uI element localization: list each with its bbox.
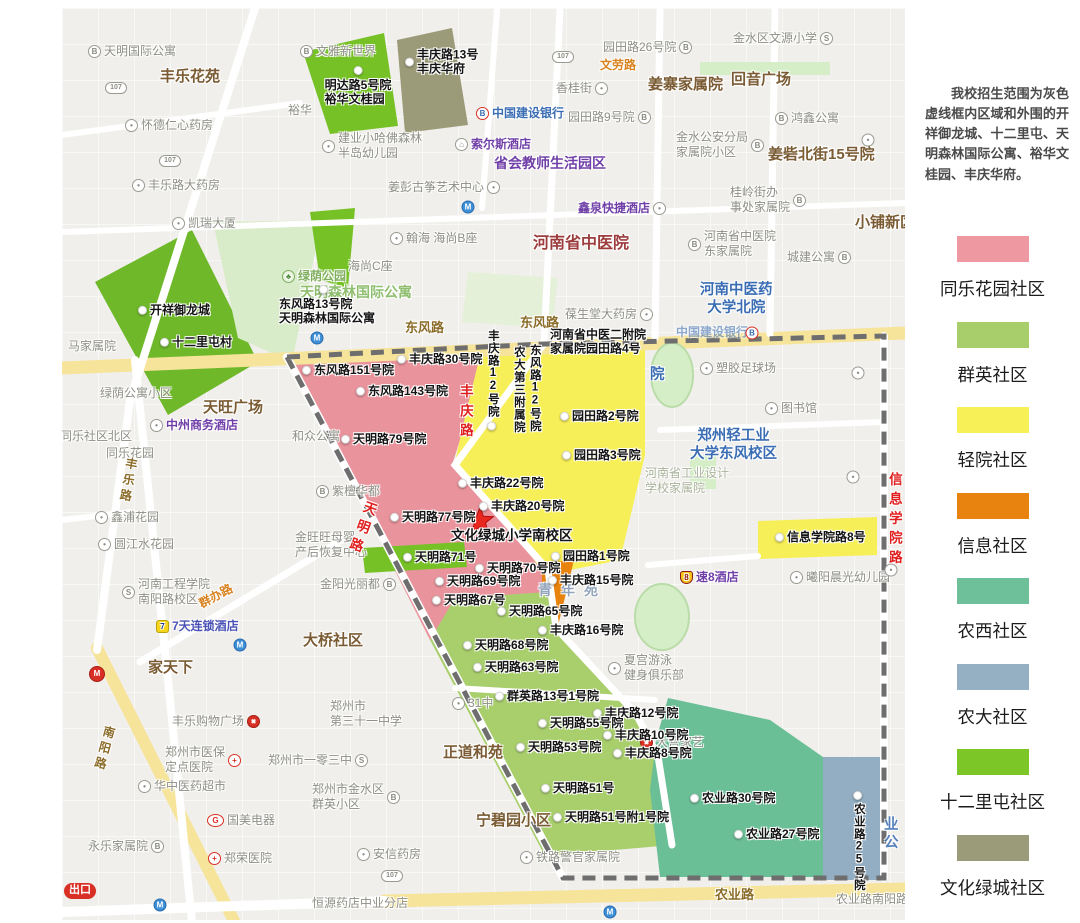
hosp-icon: +: [208, 852, 221, 865]
point-dot-icon: [538, 718, 547, 727]
point-label: 农大第三附属院: [511, 346, 525, 434]
point-label: 丰庆路22号院: [470, 476, 543, 490]
map-label: •圆江水花园: [98, 537, 174, 552]
map-point: 园田路2号院: [560, 409, 639, 423]
map-label: 农业路: [715, 887, 754, 903]
redpoi-icon: •: [247, 715, 260, 728]
map-label-text: 永乐家属院: [88, 839, 148, 854]
point-label: 东风路13号院 天明森林国际公寓: [279, 297, 375, 326]
bank-icon: B: [638, 111, 651, 124]
point-label: 园田路2号院: [572, 409, 639, 423]
region-nongxi-teal: [650, 698, 823, 877]
legend-swatch: [957, 493, 1029, 519]
info-panel: 我校招生范围为灰色虚线框内区域和外围的开祥御龙城、十二里屯、天明森林国际公寓、裕…: [905, 0, 1080, 923]
map-point: 天明路65号院: [497, 604, 582, 618]
admission-notice: 我校招生范围为灰色虚线框内区域和外围的开祥御龙城、十二里屯、天明森林国际公寓、裕…: [925, 84, 1069, 185]
map-label: •怀德仁心药房: [125, 118, 213, 133]
poi-icon: •: [520, 851, 533, 864]
map-label-text: 郑州市一零三中: [268, 753, 352, 768]
map-label-text: 东风路: [405, 320, 444, 336]
map-label-text: 紫檀华都: [332, 484, 380, 499]
point-label: 天明路77号院: [402, 510, 475, 524]
map-label: 葆生堂大药房•: [565, 307, 653, 322]
map-label: 桂岭街办 事处家属院B: [730, 185, 806, 215]
point-label: 天明路68号院: [475, 638, 548, 652]
map-point: 丰庆路22号院: [458, 476, 543, 490]
poi-icon: •: [452, 697, 465, 710]
map-label: ♣绿荫公园: [282, 269, 346, 284]
map-label: 丰乐花苑: [160, 68, 220, 87]
legend-label: 信息社区: [958, 533, 1028, 558]
map-label-text: 丰庆路: [456, 384, 473, 443]
map-label-text: 院: [650, 366, 665, 384]
badge-icon: 107: [381, 870, 403, 882]
point-label: 农业路27号院: [746, 827, 819, 841]
poi-icon: •: [487, 181, 500, 194]
map-point: 天明路68号院: [463, 638, 548, 652]
map-point: 天明路71号: [403, 550, 476, 564]
legend-label: 十二里屯社区: [940, 789, 1045, 814]
map-label-text: 农业路: [715, 887, 754, 903]
map-label: 同乐社区北区: [60, 429, 132, 444]
map-point: 农业路27号院: [734, 827, 819, 841]
legend-item: 十二里屯社区: [905, 741, 1080, 827]
point-label: 天明路51号附1号院: [565, 810, 669, 824]
point-label: 文化绿城小学南校区: [451, 528, 573, 544]
map-label-text: 葆生堂大药房: [565, 307, 637, 322]
map-label: 金水公安分局 家属院小区B: [676, 130, 764, 160]
legend-swatch: [957, 835, 1029, 861]
map-label-text: 铁路警官家属院: [536, 850, 620, 865]
map-label: 金水区文源小学S: [733, 31, 833, 46]
point-dot-icon: [497, 606, 506, 615]
map-label-text: 河南省中医院 东家属院: [704, 229, 776, 259]
point-label: 天明路79号院: [353, 432, 426, 446]
point-label: 群英路13号1号院: [507, 689, 599, 703]
point-dot-icon: [356, 386, 365, 395]
point-dot-icon: [734, 829, 743, 838]
bank-icon: B: [151, 840, 164, 853]
point-label: 十二里屯村: [172, 335, 232, 349]
map-label-text: 7天连锁酒店: [172, 619, 239, 634]
road-nongye-rd: [385, 889, 905, 901]
map-point: 十二里屯村: [160, 335, 232, 349]
metro-icon: M: [462, 201, 475, 214]
map-label: 姜寨家属院: [648, 76, 723, 95]
map-label: 家天下: [148, 659, 193, 678]
map-label-text: 中州商务酒店: [166, 418, 238, 433]
point-dot-icon: [403, 552, 412, 561]
map-label-text: 速8酒店: [696, 570, 739, 585]
map-point: 东风路143号院: [356, 384, 448, 398]
map-point: 丰庆路30号院: [397, 352, 482, 366]
redm-icon: M: [89, 666, 105, 682]
poi-icon: •: [357, 848, 370, 861]
legend-label: 文化绿城社区: [940, 875, 1045, 900]
map-label: •建业小哈佛森林 半岛幼儿园: [322, 131, 422, 161]
map-label-text: 天旺广场: [203, 399, 263, 418]
point-label: 天明路51号: [553, 781, 614, 795]
map-point: 东风路151号院: [302, 363, 394, 377]
map-label: 正道和苑: [443, 744, 503, 763]
map-label-text: 鑫浦花园: [111, 510, 159, 525]
map-point: 天明路69号院: [435, 574, 520, 588]
bank-icon: B: [387, 791, 400, 804]
point-dot-icon: [613, 748, 622, 757]
point-label: 农业路25号院: [851, 803, 865, 892]
map-label: 裕华: [288, 103, 312, 118]
point-dot-icon: [138, 305, 147, 314]
map-point: 天明路77号院: [390, 510, 475, 524]
map-label: 香桂街•: [556, 81, 608, 96]
road-street: [648, 556, 758, 565]
point-dot-icon: [562, 450, 571, 459]
map-label: •中州商务酒店: [150, 418, 238, 433]
bank-icon: B: [775, 112, 788, 125]
point-dot-icon: [538, 625, 547, 634]
point-label: 园田路1号院: [563, 549, 630, 563]
map-label-text: 鑫泉快捷酒店: [578, 201, 650, 216]
map-label: B鸿鑫公寓: [775, 111, 839, 126]
map-label-text: 出口: [69, 884, 91, 898]
map-label: 信息学院路: [885, 472, 902, 570]
map-label-text: 文雅新世界: [316, 44, 376, 59]
map-label-text: 信息学院路: [885, 472, 902, 570]
map-label: •31中: [452, 696, 493, 711]
poi-icon: •: [847, 471, 860, 484]
map-point: 丰庆路12号院: [485, 330, 499, 431]
metro-icon: M: [154, 899, 167, 912]
point-label: 天明路63号院: [485, 660, 558, 674]
legend-swatch: [957, 578, 1029, 604]
map-label: 大桥社区: [303, 632, 363, 651]
metro-icon: M: [311, 332, 324, 345]
map-label: 和众公寓: [292, 429, 340, 444]
point-label: 明达路5号院 裕华文桂园: [325, 78, 392, 107]
map-label-text: 河南省中医院: [533, 234, 629, 254]
map-label-text: 曦阳晨光幼儿园: [806, 570, 890, 585]
map-label: •图书馆: [765, 401, 817, 416]
point-dot-icon: [548, 575, 557, 584]
map-label-text: 图书馆: [781, 401, 817, 416]
point-dot-icon: [553, 812, 562, 821]
poi-icon: •: [790, 571, 803, 584]
metro-icon: M: [604, 906, 617, 919]
map-label-text: 河南中医药 大学北院: [700, 281, 773, 317]
map-label-text: 丰乐花苑: [160, 68, 220, 87]
map-label-text: 回音广场: [731, 71, 791, 90]
map-point: 河南省中医二附院 家属院园田路4号: [550, 328, 646, 357]
map-label-text: 国美电器: [227, 813, 275, 828]
map-label-text: 恒源药店中业分店: [312, 896, 408, 911]
legend-item: 农大社区: [905, 656, 1080, 742]
bank-icon: B: [383, 578, 396, 591]
bank-icon: B: [300, 45, 313, 58]
map-point: 园田路3号院: [562, 448, 641, 462]
point-label: 丰庆路16号院: [550, 623, 623, 637]
map-label-text: 姜寨家属院: [648, 76, 723, 95]
metro-icon: M: [234, 639, 247, 652]
legend-swatch: [957, 322, 1029, 348]
map-point: 园田路1号院: [551, 549, 630, 563]
point-label: 天明路53号院: [528, 740, 601, 754]
seven-icon: 7: [156, 620, 169, 633]
map-label: 金阳光丽都B: [320, 577, 396, 592]
map-point: 东风路13号院 天明森林国际公寓: [319, 285, 375, 326]
map-label: +郑荣医院: [208, 851, 272, 866]
map-point: 丰庆路13号 丰庆华府: [405, 48, 478, 77]
map-label: 郑州轻工业 大学东风校区: [690, 427, 777, 463]
point-dot-icon: [541, 783, 550, 792]
bankr-icon: B: [746, 327, 759, 340]
map-label: 院: [650, 366, 665, 384]
map-label: •丰乐路大药房: [132, 178, 220, 193]
stadium: [635, 584, 689, 650]
map-label: •夏宫游泳 健身俱乐部: [608, 653, 684, 683]
map-margin-left: [0, 0, 62, 923]
map-label-text: 索尔斯酒店: [471, 137, 531, 152]
map-label-text: 郑州市 第三十一中学: [330, 699, 402, 729]
poi-icon: •: [653, 202, 666, 215]
map-label-text: 金水公安分局 家属院小区: [676, 130, 748, 160]
legend-swatch: [957, 749, 1029, 775]
map-point: 丰庆路15号院: [548, 573, 633, 587]
map-point: 群英路13号1号院: [495, 689, 599, 703]
map-label-text: 凯瑞大厦: [188, 216, 236, 231]
map-label-text: 海尚C座: [348, 259, 393, 274]
legend-swatch: [957, 664, 1029, 690]
poi-icon: •: [608, 662, 621, 675]
map-label: 马家属院: [68, 339, 116, 354]
point-dot-icon: [405, 58, 414, 67]
map-label: 园田路26号院B: [603, 40, 692, 55]
map-label: •铁路警官家属院: [520, 850, 620, 865]
point-dot-icon: [487, 421, 496, 430]
map-label-text: 农业路南阳路: [836, 892, 908, 907]
badge-icon: 107: [552, 51, 574, 63]
map-label: 海尚C座: [348, 259, 393, 274]
map-label: 农业路南阳路: [836, 892, 908, 907]
map-label-text: 文劳路: [600, 58, 636, 73]
bank-icon: B: [838, 251, 851, 264]
poi-icon: •: [640, 308, 653, 321]
legend: 同乐花园社区群英社区轻院社区信息社区农西社区农大社区十二里屯社区文化绿城社区: [905, 228, 1080, 912]
map-label-text: 和众公寓: [292, 429, 340, 444]
road-yuantian-rd: [655, 10, 660, 338]
poi-icon: •: [595, 82, 608, 95]
map-label-text: 夏宫游泳 健身俱乐部: [624, 653, 684, 683]
map-label: S河南工程学院 南阳路校区: [122, 577, 210, 607]
map-label-text: 翰海 海尚B座: [406, 231, 477, 246]
region-fengqing-huafu: [397, 28, 468, 133]
map-label: 城建公寓B: [787, 250, 851, 265]
map-label-text: 郑荣医院: [224, 851, 272, 866]
map-point: 丰庆路8号院: [613, 746, 692, 760]
point-label: 农业路30号院: [702, 791, 775, 805]
map-label: 郑州市 第三十一中学: [330, 699, 402, 729]
map-label-text: 金阳光丽都: [320, 577, 380, 592]
point-label: 园田路3号院: [574, 448, 641, 462]
map-label: •鑫浦花园: [95, 510, 159, 525]
point-label: 丰庆路12号院: [485, 330, 499, 419]
map-point: 文化绿城小学南校区: [451, 528, 573, 544]
map-label-text: 宁碧园小区: [476, 812, 551, 831]
poi-icon: •: [700, 362, 713, 375]
map-label-text: 姜砦北街15号院: [768, 146, 875, 165]
map-label-text: 金水区文源小学: [733, 31, 817, 46]
map-label: 河南省工业设计 学校家属院: [645, 466, 729, 496]
bank-icon: B: [88, 45, 101, 58]
map-label: 77天连锁酒店: [156, 619, 239, 634]
point-dot-icon: [397, 354, 406, 363]
map-label: 郑州市金水区 群英小区B: [312, 782, 400, 812]
map-point: 丰庆路20号院: [479, 499, 564, 513]
map-label-text: 正道和苑: [443, 744, 503, 763]
map-label: 姜砦北街15号院: [768, 146, 875, 165]
school-icon: S: [820, 32, 833, 45]
legend-swatch: [957, 407, 1029, 433]
legend-label: 轻院社区: [958, 447, 1028, 472]
point-dot-icon: [458, 478, 467, 487]
map-label-text: 华中医药超市: [154, 779, 226, 794]
map-label-text: 大桥社区: [303, 632, 363, 651]
point-label: 丰庆路15号院: [560, 573, 633, 587]
point-dot-icon: [319, 285, 328, 294]
point-dot-icon: [341, 434, 350, 443]
map-point: 丰庆路10号院: [603, 728, 688, 742]
map-label-text: 香桂街: [556, 81, 592, 96]
map-label: 回音广场: [731, 71, 791, 90]
map-point: 明达路5号院 裕华文桂园: [325, 66, 392, 107]
point-label: 东风路143号院: [368, 384, 448, 398]
map-point: 农业路30号院: [690, 791, 775, 805]
point-label: 天明路69号院: [447, 574, 520, 588]
map-label-text: 郑州市医保 定点医院: [165, 745, 225, 775]
point-label: 丰庆路20号院: [491, 499, 564, 513]
map-point: 农业路25号院: [851, 791, 865, 892]
map-label: B文雅新世界: [300, 44, 376, 59]
map-label-text: 马家属院: [68, 339, 116, 354]
point-dot-icon: [390, 512, 399, 521]
legend-swatch: [957, 236, 1029, 262]
map-label-text: 河南省工业设计 学校家属院: [645, 466, 729, 496]
map-label: 园田路9号院B: [568, 110, 651, 125]
map-margin-top: [62, 0, 905, 8]
map-label-text: 裕华: [288, 103, 312, 118]
legend-item: 轻院社区: [905, 399, 1080, 485]
map-label-text: 天明国际公寓: [104, 44, 176, 59]
map-point: 开祥御龙城: [138, 303, 210, 317]
hosp-icon: +: [228, 754, 241, 767]
legend-label: 农大社区: [958, 704, 1028, 729]
point-dot-icon: [475, 563, 484, 572]
map-label: •塑胶足球场: [700, 361, 776, 376]
point-dot-icon: [560, 411, 569, 420]
poi-icon: •: [125, 119, 138, 132]
legend-label: 群英社区: [958, 362, 1028, 387]
poi-icon: •: [132, 179, 145, 192]
map-label-text: 安信药房: [373, 847, 421, 862]
map-label-text: 园田路26号院: [603, 40, 676, 55]
map-point: 天明路51号: [541, 781, 614, 795]
poi-icon: •: [765, 402, 778, 415]
point-dot-icon: [853, 791, 862, 800]
map-label-text: 建业小哈佛森林 半岛幼儿园: [338, 131, 422, 161]
map-label: 出口: [64, 883, 96, 899]
map-label: •安信药房: [357, 847, 421, 862]
poi-icon: •: [852, 367, 865, 380]
map-label: B天明国际公寓: [88, 44, 176, 59]
map-label-text: 丰乐路大药房: [148, 178, 220, 193]
point-label: 河南省中医二附院 家属院园田路4号: [550, 328, 646, 357]
map-label: •翰海 海尚B座: [390, 231, 477, 246]
bank-icon: B: [793, 194, 806, 207]
poi-icon: •: [322, 140, 335, 153]
map-label-text: 中国建设银行: [676, 325, 748, 340]
map-label: B中国建设银行: [476, 106, 564, 121]
map-point: 天明路51号附1号院: [553, 810, 669, 824]
bank-icon: B: [316, 485, 329, 498]
point-dot-icon: [302, 365, 311, 374]
point-label: 天明路65号院: [509, 604, 582, 618]
point-dot-icon: [495, 691, 504, 700]
map-label-text: 鸿鑫公寓: [791, 111, 839, 126]
point-dot-icon: [603, 730, 612, 739]
map-label-text: 家天下: [148, 659, 193, 678]
point-label: 东风路12号院: [527, 344, 541, 433]
map-label-text: 郑州轻工业 大学东风校区: [690, 427, 777, 463]
map-label-text: 中国建设银行: [492, 106, 564, 121]
map-label-text: 同乐社区北区: [60, 429, 132, 444]
legend-label: 同乐花园社区: [940, 276, 1045, 301]
map-label: ⌂索尔斯酒店: [455, 137, 531, 152]
point-dot-icon: [775, 532, 784, 541]
bank-icon: B: [751, 139, 764, 152]
poi-icon: •: [885, 564, 898, 577]
point-label: 丰庆路8号院: [625, 746, 692, 760]
point-dot-icon: [516, 742, 525, 751]
point-label: 天明路71号: [415, 550, 476, 564]
legend-item: 农西社区: [905, 570, 1080, 656]
shield-icon: 8: [680, 571, 693, 584]
tree-icon: ♣: [282, 270, 295, 283]
map-label-text: 姜彭古筝艺术中心: [388, 180, 484, 195]
map-point: 天明路79号院: [341, 432, 426, 446]
map-label-text: 绿荫公寓小区: [100, 386, 172, 401]
point-dot-icon: [551, 551, 560, 560]
poi-icon: •: [138, 780, 151, 793]
map-label: 业 公: [884, 816, 899, 852]
map-label: 绿荫公寓小区: [100, 386, 172, 401]
map-label-text: 园田路9号院: [568, 110, 635, 125]
poi-icon: •: [95, 511, 108, 524]
school-icon: S: [355, 754, 368, 767]
map-label: 丰乐购物广场•: [172, 714, 260, 729]
point-dot-icon: [690, 793, 699, 802]
legend-item: 群英社区: [905, 314, 1080, 400]
point-label: 丰庆路13号 丰庆华府: [417, 48, 478, 77]
map-label: 鑫泉快捷酒店•: [578, 201, 666, 216]
poi-icon: •: [150, 419, 163, 432]
map-label-text: 业 公: [884, 816, 899, 852]
poi-icon: •: [98, 538, 111, 551]
point-dot-icon: [463, 640, 472, 649]
poi-icon: •: [172, 217, 185, 230]
legend-label: 农西社区: [958, 618, 1028, 643]
map-label: 省会教师生活园区: [494, 155, 606, 173]
point-label: 丰庆路30号院: [409, 352, 482, 366]
bank-icon: B: [679, 41, 692, 54]
